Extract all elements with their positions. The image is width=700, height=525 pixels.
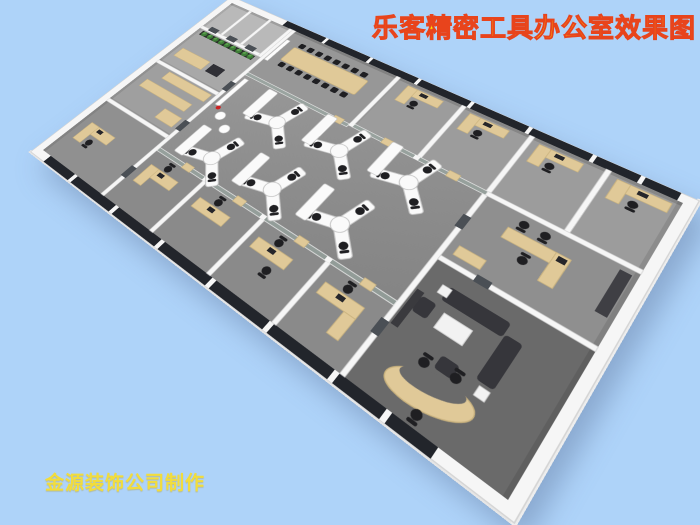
building-3d-transform <box>43 3 683 500</box>
credit-caption: 金源装饰公司制作 <box>45 468 205 495</box>
render-background: { "title": { "text": "乐客精密工具办公室效果图" }, "… <box>0 0 700 525</box>
render-canvas: 乐客精密工具办公室效果图 金源装饰公司制作 <box>0 0 700 525</box>
floorplan-svg <box>28 0 700 525</box>
building-shadow-wrapper <box>0 0 700 525</box>
title-caption: 乐客精密工具办公室效果图 <box>372 8 696 45</box>
